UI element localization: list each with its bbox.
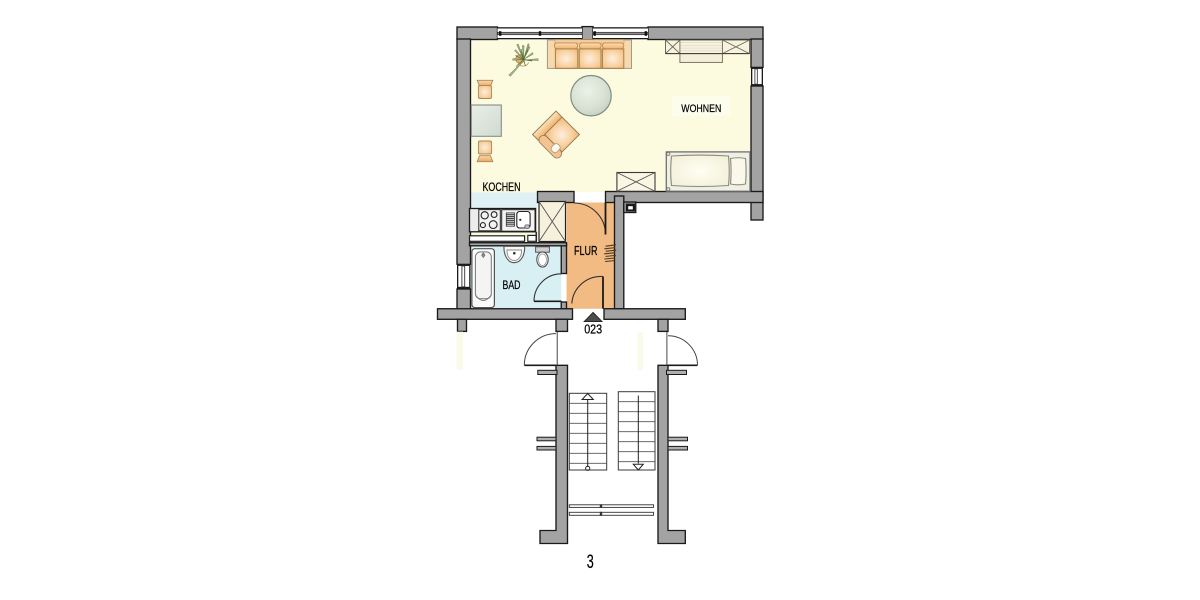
- svg-text:KOCHEN: KOCHEN: [483, 180, 521, 194]
- svg-text:FLUR: FLUR: [574, 244, 598, 258]
- svg-text:3: 3: [587, 552, 594, 573]
- svg-text:023: 023: [584, 322, 602, 337]
- svg-text:WOHNEN: WOHNEN: [681, 103, 721, 115]
- svg-text:BAD: BAD: [503, 280, 521, 292]
